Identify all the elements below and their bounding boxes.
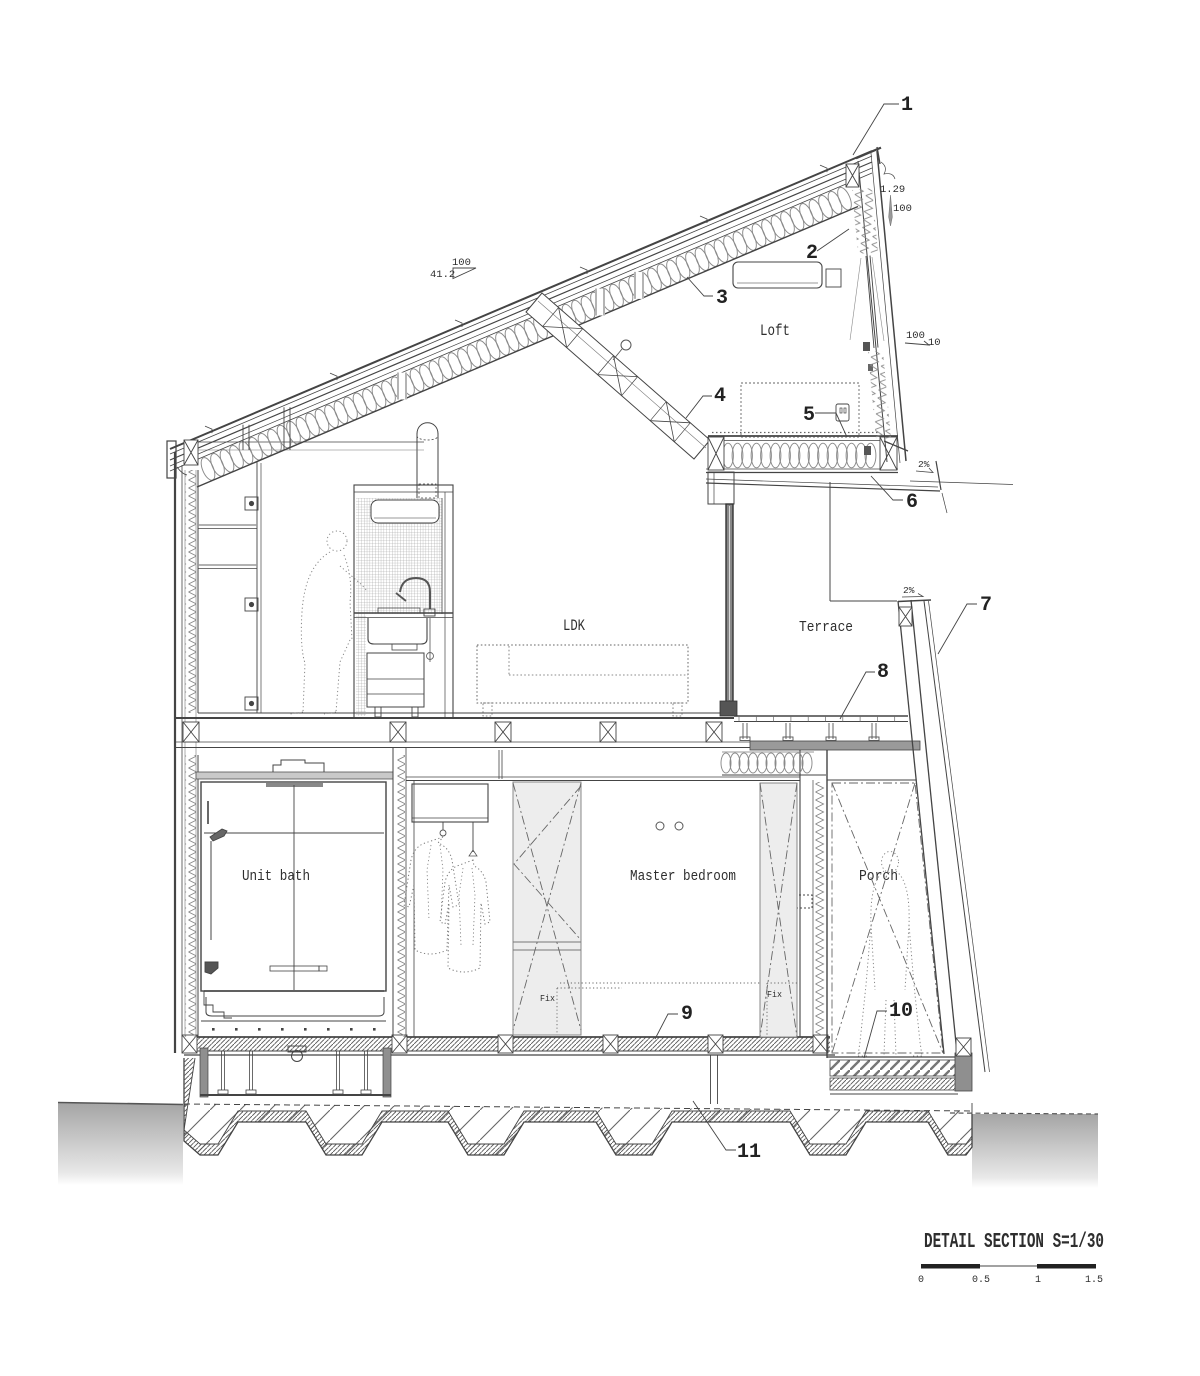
svg-text:DETAIL SECTION S=1/30: DETAIL SECTION S=1/30 <box>924 1231 1104 1254</box>
svg-text:1: 1 <box>901 94 913 117</box>
svg-text:100: 100 <box>452 257 471 269</box>
svg-text:10: 10 <box>928 337 941 349</box>
svg-text:7: 7 <box>980 594 992 617</box>
svg-text:3: 3 <box>716 287 728 310</box>
svg-text:10: 10 <box>889 1000 913 1023</box>
svg-text:100: 100 <box>893 203 912 215</box>
svg-text:6: 6 <box>906 491 918 514</box>
svg-text:1: 1 <box>1035 1275 1041 1286</box>
svg-text:2%: 2% <box>903 585 915 596</box>
svg-text:1.5: 1.5 <box>1085 1275 1103 1286</box>
svg-text:2: 2 <box>806 242 818 265</box>
svg-text:100: 100 <box>906 330 925 342</box>
svg-text:8: 8 <box>877 661 889 684</box>
svg-text:0: 0 <box>918 1275 924 1286</box>
svg-text:9: 9 <box>681 1003 693 1026</box>
svg-text:41.2: 41.2 <box>430 269 455 281</box>
svg-text:Unit bath: Unit bath <box>242 868 310 885</box>
svg-text:2%: 2% <box>918 459 930 470</box>
svg-text:Fix: Fix <box>767 989 782 1000</box>
svg-text:LDK: LDK <box>563 617 585 635</box>
svg-text:1.29: 1.29 <box>880 184 905 196</box>
svg-text:4: 4 <box>714 385 726 408</box>
svg-text:5: 5 <box>803 404 815 427</box>
svg-text:11: 11 <box>737 1141 761 1164</box>
svg-text:Fix: Fix <box>540 993 555 1004</box>
svg-text:Loft: Loft <box>760 322 790 340</box>
svg-text:Master bedroom: Master bedroom <box>630 868 736 885</box>
svg-text:Terrace: Terrace <box>799 619 853 636</box>
svg-text:0.5: 0.5 <box>972 1275 990 1286</box>
